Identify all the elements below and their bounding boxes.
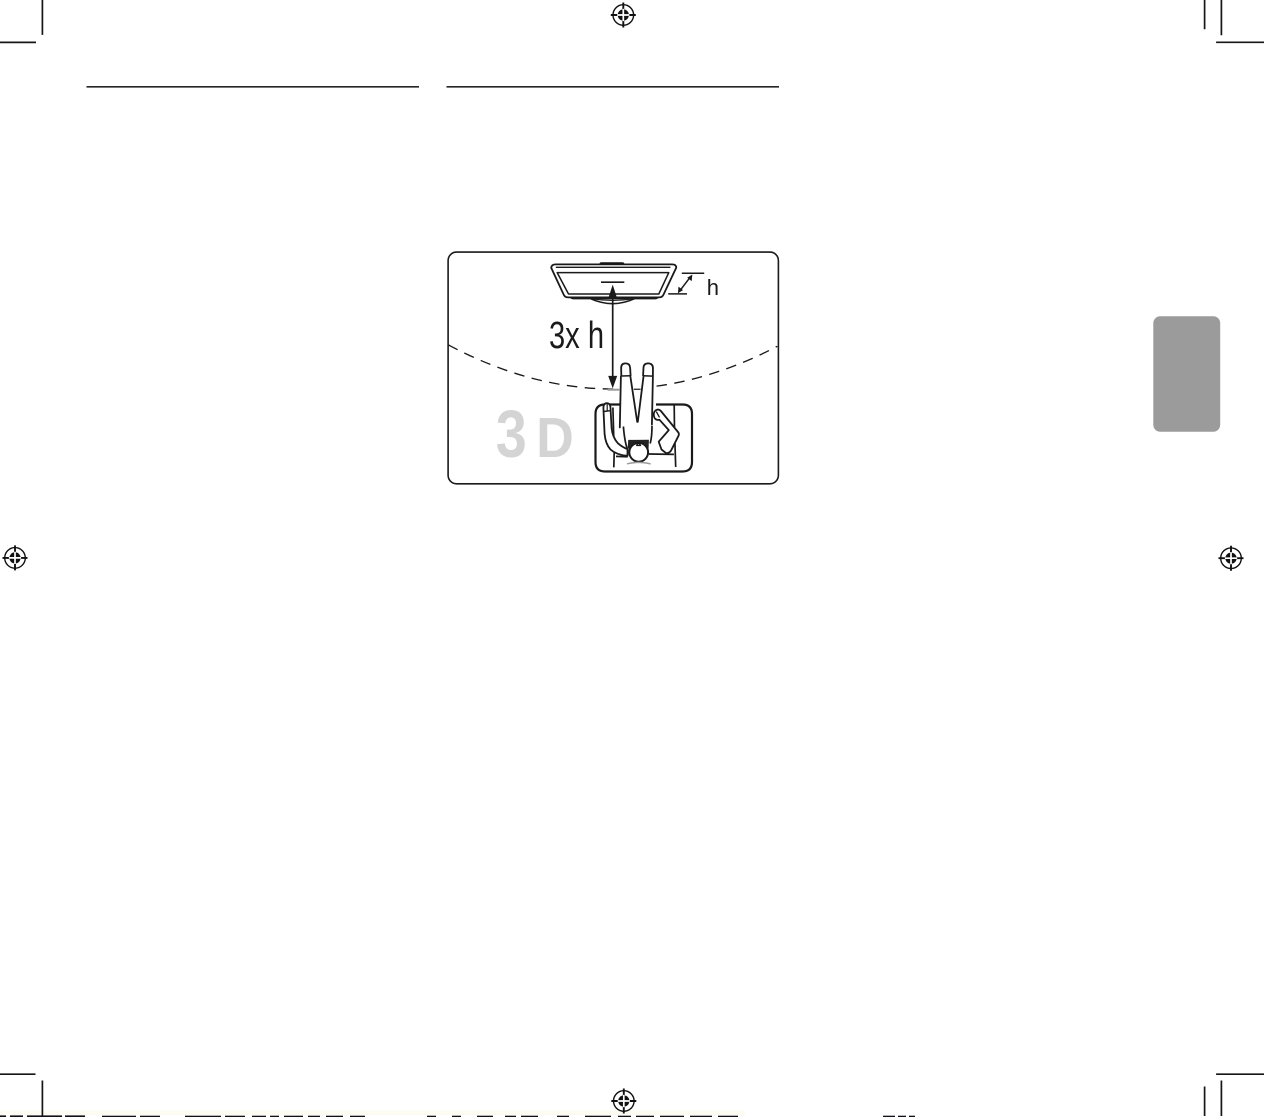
svg-text:3: 3 (496, 397, 527, 472)
svg-text:D: D (536, 406, 574, 469)
svg-text:h: h (707, 275, 719, 300)
svg-text:3x h: 3x h (549, 315, 604, 357)
